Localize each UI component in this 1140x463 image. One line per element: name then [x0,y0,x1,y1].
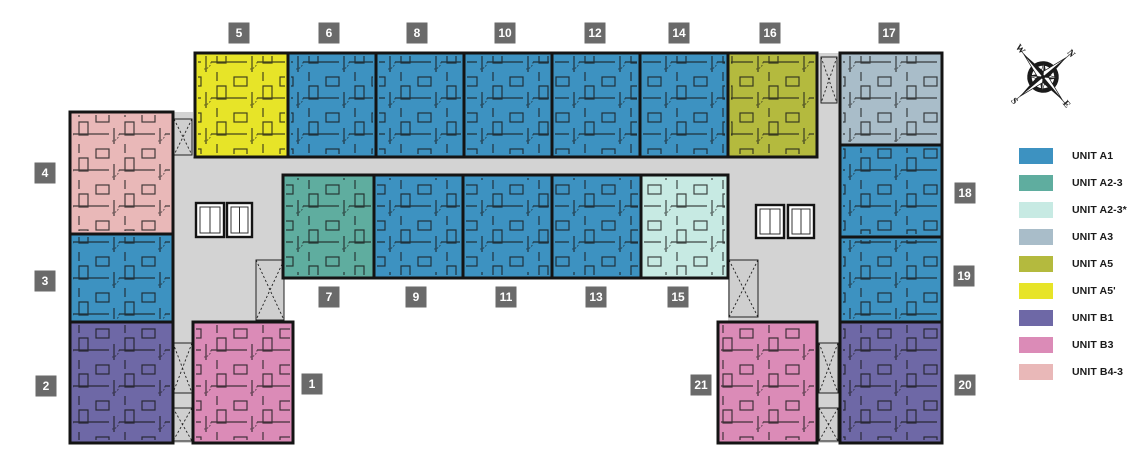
unit-5 [195,53,288,157]
unit-1-badge-label: 1 [309,377,316,391]
unit-3-badge-label: 3 [42,274,49,288]
unit-5-badge[interactable]: 5 [229,23,250,44]
unit-17-badge[interactable]: 17 [879,23,900,44]
unit-16-badge-label: 16 [763,26,777,40]
unit-18-badge-label: 18 [958,186,972,200]
legend-label-A2-3*: UNIT A2-3* [1072,204,1127,216]
unit-2-area[interactable] [70,322,173,443]
unit-18-area[interactable] [840,145,942,237]
elevator-shaft [196,203,224,237]
unit-16-area[interactable] [728,53,817,157]
unit-10-badge-label: 10 [498,26,512,40]
unit-17-area[interactable] [840,53,942,145]
legend-swatch-A1 [1019,148,1053,164]
compass-label-w: W [1013,43,1027,57]
legend-swatch-B4-3 [1019,364,1053,380]
legend-label-B1: UNIT B1 [1072,312,1114,324]
unit-10-area[interactable] [464,53,552,157]
unit-14-badge[interactable]: 14 [669,23,690,44]
unit-2-badge-label: 2 [43,379,50,393]
floor-plan-canvas: 123456789101112131415161718192021 [0,0,1140,463]
legend-swatch-A5' [1019,283,1053,299]
unit-19-area[interactable] [840,237,942,322]
unit-9-area[interactable] [374,175,463,278]
unit-6 [288,53,376,157]
compass-label-n: N [1064,48,1076,60]
unit-13-badge[interactable]: 13 [586,287,607,308]
unit-21-area[interactable] [718,322,817,443]
legend-item-B4-3: UNIT B4-3 [1019,364,1139,380]
unit-12 [552,53,640,157]
unit-7-badge[interactable]: 7 [319,287,340,308]
compass-label-e: E [1060,99,1072,110]
unit-7-badge-label: 7 [326,290,333,304]
unit-9 [374,175,463,278]
stairwell [729,260,758,317]
unit-16 [728,53,817,157]
legend-label-B4-3: UNIT B4-3 [1072,366,1123,378]
unit-11-badge-label: 11 [500,290,513,304]
unit-18-badge[interactable]: 18 [955,183,976,204]
unit-8-badge-label: 8 [414,26,421,40]
stairwell [819,408,838,441]
legend-swatch-A2-3 [1019,175,1053,191]
unit-15-badge-label: 15 [671,290,685,304]
unit-14 [640,53,728,157]
unit-12-badge[interactable]: 12 [585,23,606,44]
elevator-shaft [227,203,252,237]
unit-19-badge[interactable]: 19 [954,266,975,287]
unit-8-badge[interactable]: 8 [407,23,428,44]
unit-3 [70,234,173,322]
unit-6-badge[interactable]: 6 [319,23,340,44]
unit-13 [552,175,641,278]
unit-10-badge[interactable]: 10 [495,23,516,44]
unit-7-area[interactable] [283,175,374,278]
unit-14-area[interactable] [640,53,728,157]
unit-8-area[interactable] [376,53,464,157]
legend-item-A5: UNIT A5 [1019,256,1139,272]
unit-12-area[interactable] [552,53,640,157]
legend-item-A2-3*: UNIT A2-3* [1019,202,1139,218]
elevator-shaft [756,205,784,238]
unit-21-badge-label: 21 [694,378,708,392]
unit-9-badge-label: 9 [413,290,420,304]
legend: UNIT A1UNIT A2-3UNIT A2-3*UNIT A3UNIT A5… [1019,148,1139,391]
unit-1-badge[interactable]: 1 [302,374,323,395]
unit-15-badge[interactable]: 15 [668,287,689,308]
compass-rose: N E S W [995,25,1095,125]
unit-4 [70,112,173,234]
unit-21 [718,322,817,443]
legend-item-B3: UNIT B3 [1019,337,1139,353]
stairwell [174,119,192,155]
legend-item-B1: UNIT B1 [1019,310,1139,326]
unit-18 [840,145,942,237]
unit-4-badge-label: 4 [42,166,49,180]
unit-19 [840,237,942,322]
legend-label-A2-3: UNIT A2-3 [1072,177,1123,189]
unit-20-badge-label: 20 [958,378,972,392]
elevator-shaft [788,205,814,238]
legend-swatch-A5 [1019,256,1053,272]
unit-4-badge[interactable]: 4 [35,163,56,184]
unit-12-badge-label: 12 [588,26,602,40]
unit-15 [641,175,728,278]
unit-13-area[interactable] [552,175,641,278]
unit-11-badge[interactable]: 11 [496,287,517,308]
unit-3-badge[interactable]: 3 [35,271,56,292]
unit-17 [840,53,942,145]
legend-item-A1: UNIT A1 [1019,148,1139,164]
legend-item-A3: UNIT A3 [1019,229,1139,245]
stairwell [256,260,284,320]
unit-14-badge-label: 14 [672,26,686,40]
unit-11-area[interactable] [463,175,552,278]
unit-15-area[interactable] [641,175,728,278]
unit-7 [283,175,374,278]
stairwell [173,408,192,441]
unit-3-area[interactable] [70,234,173,322]
unit-6-area[interactable] [288,53,376,157]
unit-21-badge[interactable]: 21 [691,375,712,396]
unit-2-badge[interactable]: 2 [36,376,57,397]
unit-19-badge-label: 19 [957,269,971,283]
legend-swatch-B1 [1019,310,1053,326]
unit-10 [464,53,552,157]
legend-label-B3: UNIT B3 [1072,339,1114,351]
unit-1-area[interactable] [193,322,293,443]
legend-label-A1: UNIT A1 [1072,150,1113,162]
legend-label-A3: UNIT A3 [1072,231,1113,243]
unit-13-badge-label: 13 [589,290,603,304]
unit-16-badge[interactable]: 16 [760,23,781,44]
unit-17-badge-label: 17 [882,26,896,40]
legend-item-A2-3: UNIT A2-3 [1019,175,1139,191]
unit-5-area[interactable] [195,53,288,157]
legend-label-A5: UNIT A5 [1072,258,1113,270]
unit-20 [840,322,942,443]
unit-20-badge[interactable]: 20 [955,375,976,396]
floor-plan-page: 123456789101112131415161718192021 [0,0,1140,463]
legend-label-A5': UNIT A5' [1072,285,1116,297]
stairwell [173,343,192,393]
legend-swatch-B3 [1019,337,1053,353]
unit-20-area[interactable] [840,322,942,443]
unit-9-badge[interactable]: 9 [406,287,427,308]
stairwell [819,343,838,393]
stairwell [821,57,837,103]
unit-4-area[interactable] [70,112,173,234]
legend-swatch-A2-3* [1019,202,1053,218]
unit-5-badge-label: 5 [236,26,243,40]
unit-11 [463,175,552,278]
unit-6-badge-label: 6 [326,26,333,40]
unit-1 [193,322,293,443]
unit-2 [70,322,173,443]
legend-item-A5': UNIT A5' [1019,283,1139,299]
unit-8 [376,53,464,157]
legend-swatch-A3 [1019,229,1053,245]
compass-label-s: S [1008,96,1019,106]
